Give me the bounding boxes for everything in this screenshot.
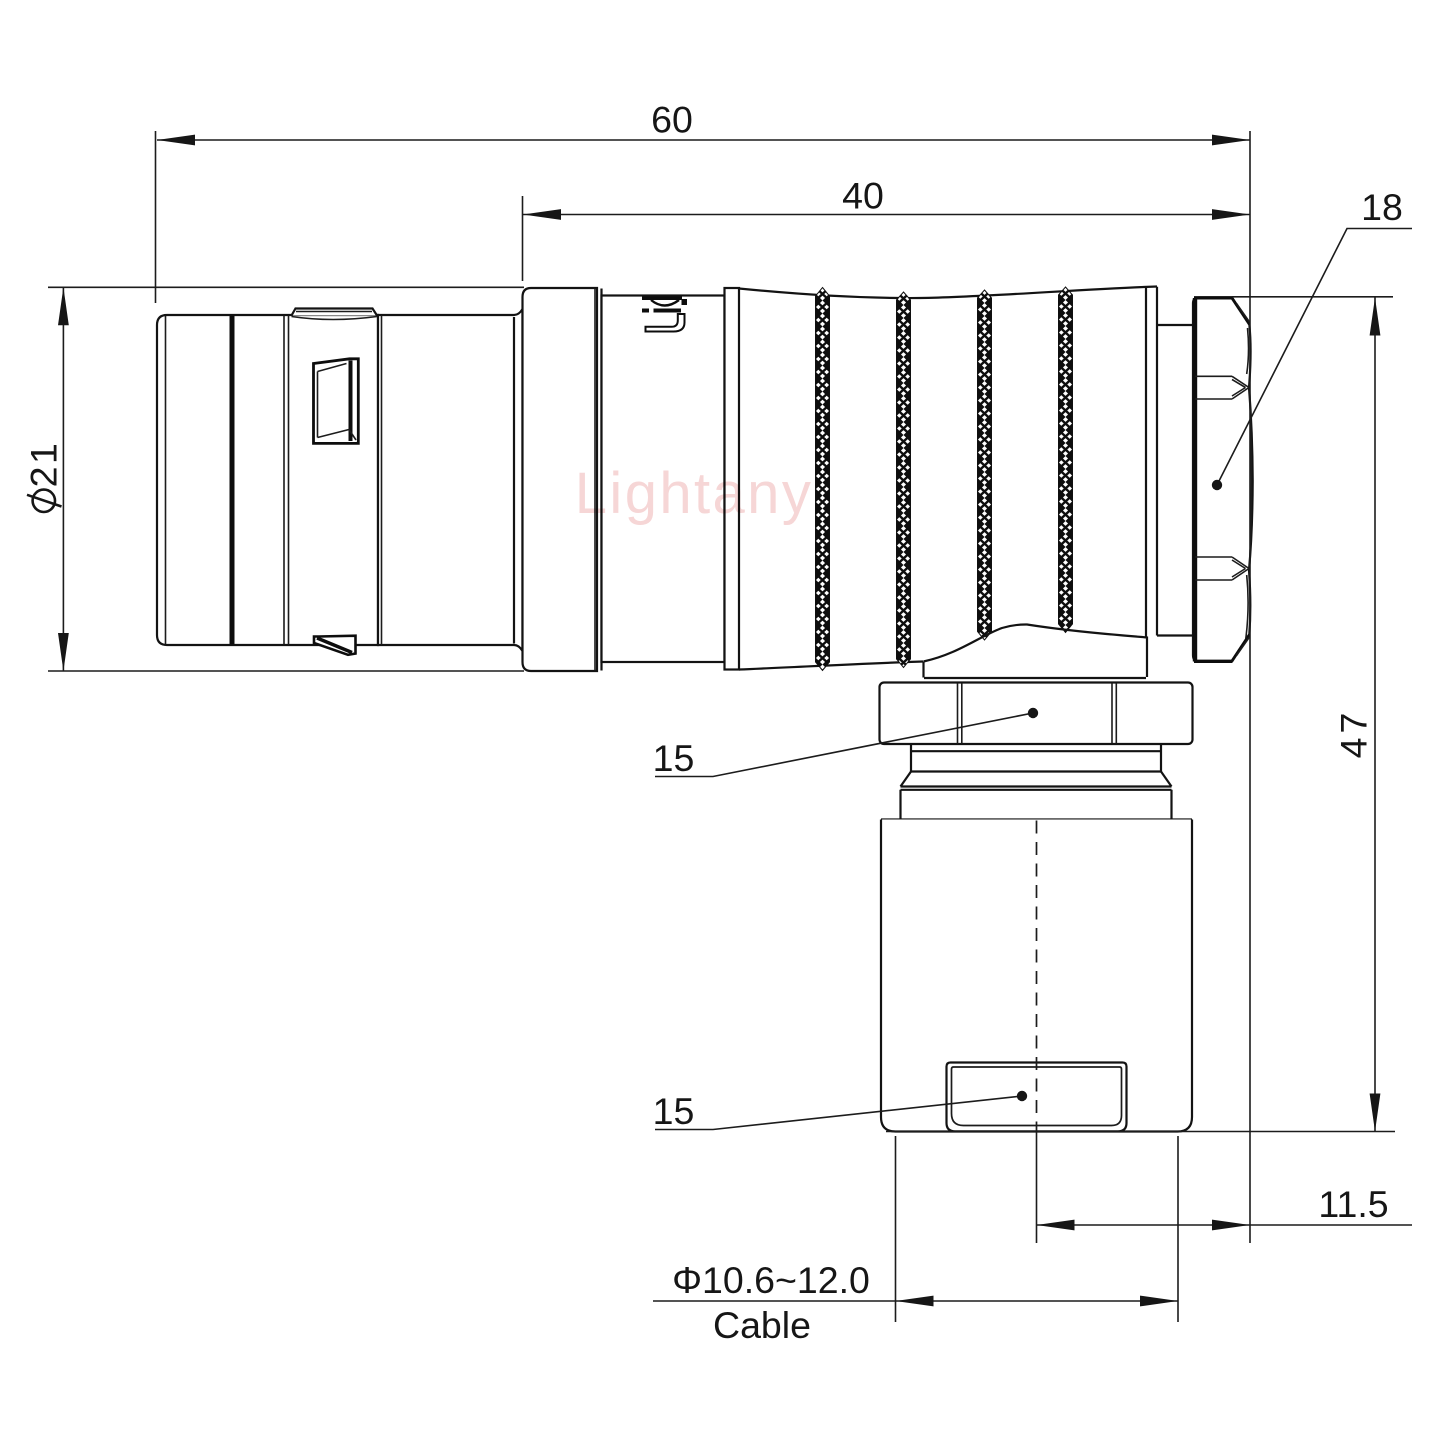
svg-text:47: 47 xyxy=(1333,709,1375,759)
svg-text:Lightany: Lightany xyxy=(575,461,813,526)
svg-text:11.5: 11.5 xyxy=(1318,1183,1388,1225)
svg-text:18: 18 xyxy=(1361,186,1403,228)
svg-text:21: 21 xyxy=(23,441,65,488)
svg-text:Φ10.6~12.0: Φ10.6~12.0 xyxy=(672,1259,870,1301)
svg-text:15: 15 xyxy=(653,1090,695,1132)
svg-text:40: 40 xyxy=(842,175,884,217)
svg-text:15: 15 xyxy=(653,737,695,779)
svg-text:Cable: Cable xyxy=(713,1304,811,1346)
svg-text:60: 60 xyxy=(651,99,693,141)
